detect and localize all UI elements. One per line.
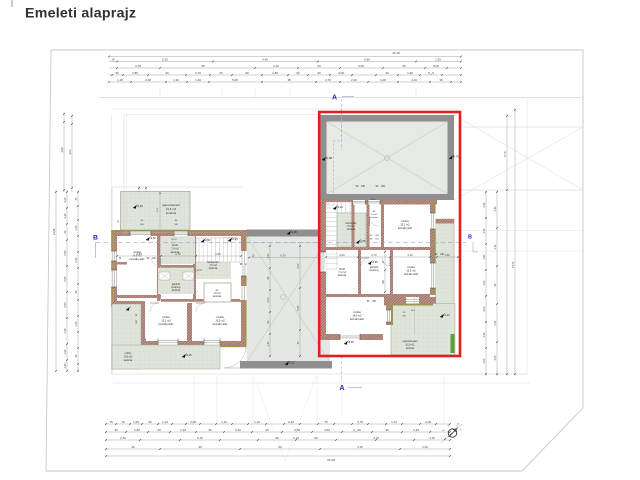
- svg-text:8,70: 8,70: [280, 253, 286, 257]
- svg-text:2,40: 2,40: [483, 202, 486, 207]
- svg-text:2,40: 2,40: [288, 420, 294, 424]
- svg-text:1,50: 1,50: [444, 253, 450, 257]
- svg-text:1,35: 1,35: [75, 225, 78, 230]
- svg-text:2,40: 2,40: [180, 428, 186, 432]
- svg-text:2,00: 2,00: [425, 420, 431, 424]
- svg-text:1,90: 1,90: [483, 254, 486, 259]
- svg-text:1,10: 1,10: [221, 420, 227, 424]
- svg-text:1,50: 1,50: [63, 349, 67, 355]
- svg-text:+2,52: +2,52: [204, 238, 211, 242]
- svg-text:szekrény: szekrény: [171, 286, 181, 289]
- svg-text:45: 45: [131, 445, 135, 449]
- svg-text:1,40: 1,40: [483, 332, 486, 337]
- svg-text:1,05: 1,05: [494, 355, 497, 360]
- svg-text:2,40: 2,40: [494, 206, 497, 211]
- svg-text:2,10: 2,10: [120, 436, 126, 440]
- svg-text:240: 240: [361, 185, 366, 188]
- svg-text:2,30: 2,30: [351, 78, 357, 82]
- svg-text:5,50: 5,50: [162, 57, 168, 61]
- svg-text:5,05: 5,05: [232, 78, 238, 82]
- svg-text:1,30: 1,30: [173, 78, 179, 82]
- svg-text:laminált padló: laminált padló: [398, 227, 413, 230]
- svg-text:2,40: 2,40: [75, 257, 78, 262]
- svg-text:1,5 m2: 1,5 m2: [371, 214, 378, 216]
- svg-text:30: 30: [385, 71, 389, 75]
- svg-text:3,70: 3,70: [135, 64, 141, 68]
- svg-text:1,45: 1,45: [267, 341, 270, 346]
- svg-text:1,00: 1,00: [380, 78, 386, 82]
- svg-text:30: 30: [208, 428, 212, 432]
- svg-text:gardrób: gardrób: [172, 283, 181, 286]
- svg-text:4,88: 4,88: [60, 147, 64, 153]
- svg-text:szoba: szoba: [162, 315, 170, 319]
- svg-text:5_,9: 5_,9: [428, 71, 434, 75]
- svg-text:2,70: 2,70: [195, 71, 201, 75]
- svg-text:90: 90: [245, 71, 249, 75]
- svg-text:2,40: 2,40: [63, 328, 67, 334]
- svg-text:szoba: szoba: [216, 315, 224, 319]
- svg-text:90: 90: [296, 71, 300, 75]
- svg-text:2,40: 2,40: [273, 64, 279, 68]
- svg-text:(6,3 m2): (6,3 m2): [406, 345, 415, 347]
- svg-text:M 70: M 70: [172, 239, 178, 241]
- svg-text:4,45: 4,45: [262, 57, 268, 61]
- svg-text:közlekedő: közlekedő: [346, 222, 357, 225]
- svg-text:30: 30: [165, 71, 169, 75]
- svg-text:kerámia: kerámia: [213, 295, 222, 298]
- svg-text:+2,52: +2,52: [288, 361, 295, 365]
- svg-text:20: 20: [157, 428, 161, 432]
- svg-text:6,45: 6,45: [297, 305, 300, 310]
- svg-text:60: 60: [148, 420, 152, 424]
- svg-text:laminált padló: laminált padló: [404, 273, 419, 276]
- svg-text:2,70: 2,70: [371, 253, 377, 257]
- svg-text:30: 30: [114, 428, 118, 432]
- svg-text:15: 15: [439, 78, 443, 82]
- svg-text:laminált padló: laminált padló: [213, 323, 228, 326]
- svg-text:napozóterasz: napozóterasz: [402, 340, 418, 343]
- svg-text:kerámia: kerámia: [347, 228, 356, 231]
- svg-text:1,40: 1,40: [63, 363, 67, 369]
- svg-text:A: A: [332, 95, 337, 102]
- svg-text:1,50: 1,50: [483, 228, 486, 233]
- svg-text:1,15: 1,15: [293, 436, 299, 440]
- svg-text:20: 20: [317, 64, 321, 68]
- svg-text:2,70: 2,70: [175, 252, 181, 256]
- svg-text:20: 20: [265, 428, 269, 432]
- svg-text:8,4 m2: 8,4 m2: [347, 226, 355, 228]
- svg-text:+2,34: +2,34: [231, 237, 238, 241]
- svg-text:60: 60: [314, 436, 318, 440]
- svg-text:1,10: 1,10: [162, 420, 168, 424]
- svg-text:1,00: 1,00: [422, 445, 428, 449]
- svg-text:4,15: 4,15: [429, 436, 435, 440]
- svg-text:2,60: 2,60: [215, 252, 221, 256]
- svg-text:+2,25: +2,25: [371, 260, 378, 264]
- svg-text:1,00: 1,00: [133, 420, 139, 424]
- svg-text:2_,40: 2_,40: [353, 428, 361, 432]
- svg-text:2,85: 2,85: [132, 71, 138, 75]
- svg-text:+2,98: +2,98: [290, 230, 297, 234]
- svg-text:2,00: 2,00: [297, 263, 300, 268]
- svg-text:8,00: 8,00: [433, 64, 439, 68]
- svg-text:14,6 m2: 14,6 m2: [352, 314, 362, 318]
- svg-text:laminált padló: laminált padló: [350, 318, 365, 321]
- svg-text:2,40: 2,40: [235, 428, 241, 432]
- svg-text:1,35: 1,35: [75, 321, 78, 326]
- svg-text:2,40: 2,40: [494, 320, 497, 325]
- svg-text:+0,79: +0,79: [452, 154, 459, 158]
- svg-text:2,10: 2,10: [494, 244, 497, 249]
- svg-text:B: B: [93, 235, 98, 242]
- svg-text:6,15: 6,15: [197, 436, 203, 440]
- svg-text:1,00: 1,00: [267, 297, 270, 302]
- svg-text:4,00: 4,00: [358, 64, 364, 68]
- svg-text:4,15: 4,15: [357, 445, 363, 449]
- svg-text:2,00: 2,00: [190, 420, 196, 424]
- svg-text:240: 240: [381, 185, 386, 188]
- svg-text:+2,23: +2,23: [443, 313, 450, 317]
- svg-text:15: 15: [287, 78, 291, 82]
- svg-text:4,08: 4,08: [338, 71, 344, 75]
- svg-text:szoba: szoba: [407, 265, 415, 269]
- svg-text:30: 30: [201, 64, 205, 68]
- svg-text:szoba: szoba: [353, 310, 361, 314]
- svg-text:26,48: 26,48: [392, 51, 400, 55]
- svg-text:1,5 m2: 1,5 m2: [213, 293, 221, 295]
- svg-text:30: 30: [115, 71, 119, 75]
- svg-text:2,60: 2,60: [339, 253, 345, 257]
- svg-text:szekrény: szekrény: [369, 269, 379, 272]
- svg-text:3,10: 3,10: [407, 253, 413, 257]
- svg-text:kerámia: kerámia: [172, 289, 181, 292]
- svg-text:kerámia: kerámia: [124, 359, 133, 362]
- svg-text:1,70: 1,70: [391, 420, 397, 424]
- svg-text:35: 35: [198, 445, 202, 449]
- svg-text:1,50: 1,50: [483, 358, 486, 363]
- svg-text:laminált padló: laminált padló: [159, 323, 174, 326]
- svg-text:2,40: 2,40: [413, 428, 419, 432]
- svg-text:20: 20: [275, 436, 279, 440]
- svg-text:1,55: 1,55: [435, 57, 441, 61]
- svg-text:1,50: 1,50: [267, 253, 270, 258]
- svg-text:+2,52: +2,52: [149, 236, 156, 240]
- svg-text:1,30: 1,30: [195, 78, 201, 82]
- svg-text:+3,25: +3,25: [347, 340, 354, 344]
- svg-text:kerámia: kerámia: [209, 267, 218, 270]
- svg-text:5,60: 5,60: [63, 302, 67, 308]
- svg-text:+2,28: +2,28: [136, 204, 143, 208]
- svg-text:70: 70: [121, 420, 125, 424]
- svg-text:30: 30: [402, 64, 406, 68]
- svg-text:3,00: 3,00: [483, 306, 486, 311]
- svg-text:1,15: 1,15: [117, 78, 123, 82]
- svg-text:fürdő: fürdő: [172, 243, 178, 247]
- svg-text:szoba: szoba: [401, 219, 409, 223]
- svg-text:B: B: [468, 235, 472, 241]
- svg-text:kerámia: kerámia: [406, 347, 415, 350]
- svg-text:2,05: 2,05: [63, 197, 67, 203]
- svg-text:1,00: 1,00: [483, 280, 486, 285]
- svg-text:2,40: 2,40: [63, 213, 67, 219]
- svg-text:6,75: 6,75: [503, 151, 507, 157]
- svg-text:20: 20: [278, 445, 282, 449]
- svg-text:M 70: M 70: [371, 199, 377, 201]
- svg-text:M: M: [117, 221, 119, 224]
- svg-text:30: 30: [385, 428, 389, 432]
- svg-text:+2,98: +2,98: [325, 156, 332, 160]
- svg-text:13,5 m2: 13,5 m2: [215, 319, 225, 323]
- svg-text:kerámia: kerámia: [166, 211, 176, 215]
- svg-text:0,80: 0,80: [63, 276, 67, 282]
- svg-text:+2,25: +2,25: [185, 353, 192, 357]
- svg-text:2,30: 2,30: [145, 78, 151, 82]
- svg-text:13,2 m2: 13,2 m2: [400, 223, 410, 227]
- svg-text:13,5 m2: 13,5 m2: [406, 269, 416, 273]
- svg-text:1,60: 1,60: [407, 71, 413, 75]
- svg-text:kerámia: kerámia: [338, 274, 347, 277]
- svg-text:kerámia: kerámia: [370, 216, 379, 219]
- svg-text:26,48: 26,48: [327, 458, 335, 462]
- svg-text:75: 75: [324, 420, 328, 424]
- svg-text:4,02: 4,02: [68, 149, 72, 155]
- svg-text:14,58: 14,58: [52, 228, 56, 235]
- svg-text:Emeleti alaprajz: Emeleti alaprajz: [25, 6, 136, 22]
- svg-text:4,00: 4,00: [294, 428, 300, 432]
- svg-text:laminált padló: laminált padló: [130, 258, 145, 261]
- svg-text:75: 75: [109, 420, 113, 424]
- svg-text:30: 30: [317, 71, 321, 75]
- svg-text:+2,24: +2,24: [336, 205, 343, 209]
- svg-text:3,70: 3,70: [373, 436, 379, 440]
- svg-text:3,70: 3,70: [357, 420, 363, 424]
- svg-text:5,90: 5,90: [63, 250, 67, 256]
- svg-text:1,10: 1,10: [254, 420, 260, 424]
- svg-text:3,70: 3,70: [325, 78, 331, 82]
- svg-text:2,83: 2,83: [136, 252, 142, 256]
- svg-text:5,65: 5,65: [364, 57, 370, 61]
- svg-text:4,60: 4,60: [324, 428, 330, 432]
- svg-text:A: A: [339, 385, 344, 392]
- svg-text:14,70: 14,70: [511, 261, 515, 268]
- svg-text:15: 15: [111, 57, 115, 61]
- svg-text:1,60: 1,60: [134, 428, 140, 432]
- svg-text:1,80: 1,80: [272, 71, 278, 75]
- svg-text:4,10: 4,10: [411, 78, 417, 82]
- svg-text:15: 15: [252, 253, 255, 257]
- svg-text:20: 20: [219, 71, 223, 75]
- svg-text:13,2 m2: 13,2 m2: [161, 319, 171, 323]
